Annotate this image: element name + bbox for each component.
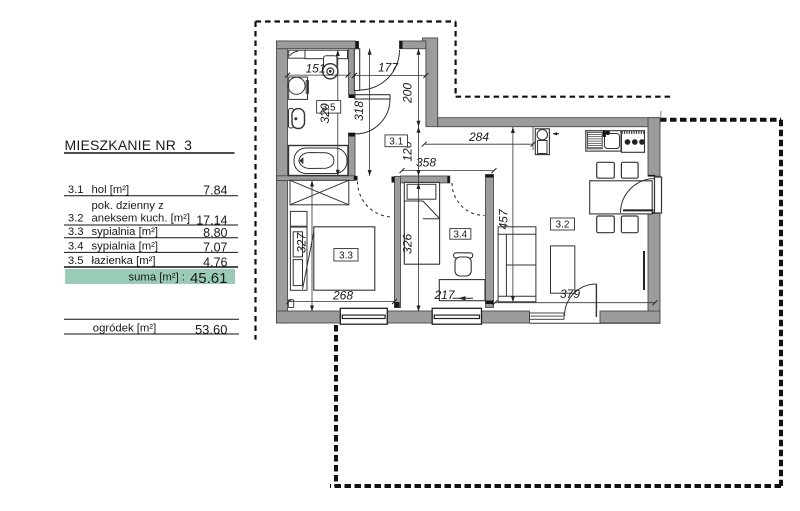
svg-text:3.2: 3.2 [68, 213, 84, 225]
svg-text:379: 379 [560, 287, 580, 301]
svg-text:53.60: 53.60 [195, 322, 228, 337]
svg-text:217: 217 [433, 288, 455, 302]
svg-text:łazienka [m²]: łazienka [m²] [92, 255, 156, 267]
svg-text:3.3: 3.3 [339, 250, 353, 261]
svg-text:151: 151 [305, 62, 325, 76]
svg-text:268: 268 [332, 289, 353, 303]
svg-text:3.4: 3.4 [453, 229, 467, 240]
svg-text:45.61: 45.61 [190, 270, 228, 287]
svg-text:sypialnia [m²]: sypialnia [m²] [92, 241, 159, 253]
svg-text:177: 177 [378, 61, 399, 75]
svg-text:200: 200 [401, 83, 415, 104]
svg-text:aneksem kuch. [m²]: aneksem kuch. [m²] [92, 213, 191, 225]
svg-text:pok. dzienny z: pok. dzienny z [92, 200, 165, 212]
svg-text:318: 318 [352, 101, 366, 121]
svg-text:358: 358 [416, 156, 436, 170]
svg-text:320: 320 [318, 103, 332, 123]
svg-text:3.5: 3.5 [68, 255, 84, 267]
svg-text:3.3: 3.3 [68, 226, 84, 238]
svg-text:suma [m²] :: suma [m²] : [129, 271, 186, 283]
svg-text:457: 457 [497, 208, 511, 229]
svg-text:sypialnia [m²]: sypialnia [m²] [92, 226, 159, 238]
svg-text:284: 284 [468, 130, 489, 144]
svg-text:3.1: 3.1 [68, 184, 84, 196]
svg-text:3.1: 3.1 [389, 136, 403, 147]
svg-text:327: 327 [295, 232, 309, 253]
svg-text:ogródek [m²]: ogródek [m²] [93, 323, 156, 335]
svg-text:MIESZKANIE NR 3: MIESZKANIE NR 3 [65, 137, 193, 153]
svg-text:326: 326 [401, 233, 415, 253]
svg-text:3.4: 3.4 [68, 241, 84, 253]
svg-text:3.2: 3.2 [556, 220, 570, 231]
svg-text:hol [m²]: hol [m²] [92, 184, 130, 196]
